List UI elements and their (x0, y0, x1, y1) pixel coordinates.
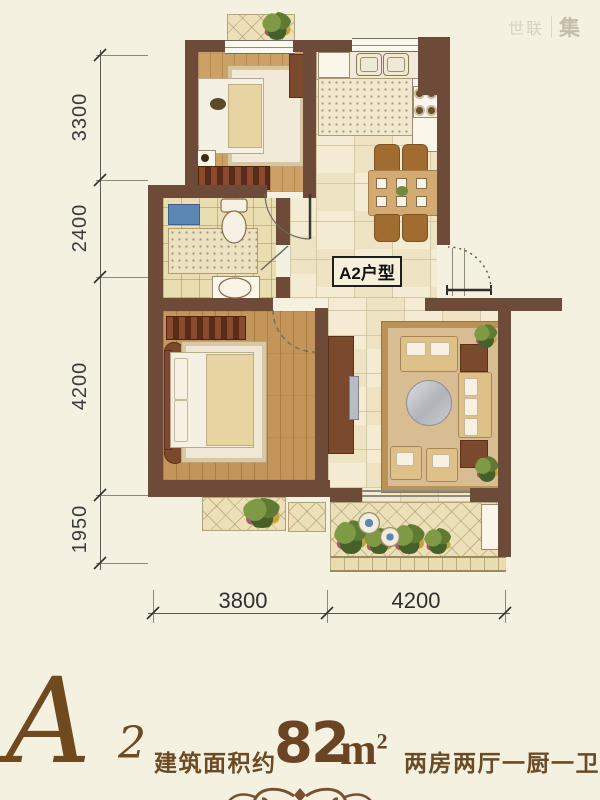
title-subscript: 2 (118, 722, 146, 766)
sofa-pillow (406, 342, 426, 356)
side-table (460, 344, 488, 372)
wall (498, 311, 511, 557)
dim-label-3800: 3800 (198, 588, 288, 614)
planter-plant (242, 498, 282, 528)
sofa-pillow (464, 418, 478, 436)
witness-line (327, 590, 328, 623)
wall (303, 52, 316, 192)
master-blanket (206, 354, 254, 446)
entry-threshold-line (464, 248, 465, 296)
kitchen-sink-left (356, 53, 382, 76)
dining-plate (396, 196, 407, 207)
wall (148, 480, 330, 497)
kitchen-fridge (318, 52, 350, 78)
balcony-stool (380, 527, 400, 547)
ornament-scroll (255, 789, 294, 800)
balcony-plant (424, 528, 452, 554)
master-pillow (174, 358, 188, 400)
wall (437, 95, 450, 245)
bottom-ornament (229, 788, 371, 800)
dining-chair (374, 144, 400, 172)
dimension-line-left (100, 50, 101, 570)
living-plant (474, 324, 498, 348)
witness-line (96, 180, 148, 181)
dim-label-2400: 2400 (69, 193, 91, 263)
witness-line (505, 590, 506, 623)
dim-label-1950: 1950 (69, 494, 91, 564)
passage-floor (328, 298, 425, 311)
living-plant (475, 456, 499, 482)
dining-plate (376, 196, 387, 207)
balcony-slider-track (362, 490, 470, 492)
dining-chair (402, 144, 428, 172)
planter-box (288, 502, 326, 532)
title-unit-sup: 2 (377, 728, 388, 753)
wall (470, 488, 510, 502)
balcony-stool (358, 512, 380, 534)
wall (185, 40, 198, 192)
title-rooms: 两房两厅一厨一卫 (404, 744, 600, 778)
armchair-pillow (396, 452, 414, 466)
sofa-pillow (464, 398, 478, 416)
wall (148, 185, 267, 198)
dim-label-4200-bottom: 4200 (371, 588, 461, 614)
planter-plant (262, 12, 292, 40)
kitchen-counter-island (318, 78, 414, 136)
sofa-pillow (430, 342, 450, 356)
witness-line (96, 495, 148, 496)
witness-line (96, 55, 148, 56)
master-wardrobe (166, 316, 246, 340)
ornament-scroll (306, 789, 345, 800)
wall (425, 298, 562, 311)
dim-label-3300: 3300 (69, 82, 91, 152)
wall (330, 488, 362, 502)
watermark-left: 世联 (508, 15, 544, 39)
witness-line (153, 590, 154, 623)
dining-plate (416, 178, 427, 189)
wall (315, 308, 328, 480)
window-bedroom2 (225, 40, 295, 54)
wall (293, 40, 352, 52)
master-pillow (174, 400, 188, 442)
ornament-scroll (229, 794, 257, 800)
witness-line (96, 277, 148, 278)
dining-chair (402, 214, 428, 242)
title-area-value: 82 (274, 716, 348, 772)
title-unit-base: m (340, 725, 377, 774)
armchair-pillow (432, 454, 450, 468)
shower-mat (168, 228, 258, 274)
title-letter: A (6, 662, 91, 780)
dining-centerpiece (396, 186, 408, 196)
dining-plate (416, 196, 427, 207)
bedroom2-bed-decor (210, 98, 226, 110)
dining-plate (376, 178, 387, 189)
sofa-pillow (464, 378, 478, 396)
dim-label-4200: 4200 (69, 351, 91, 421)
wall (303, 185, 316, 198)
wall (276, 277, 290, 298)
entry-threshold-line (452, 248, 453, 296)
witness-line (96, 563, 148, 564)
wall (148, 198, 163, 497)
kitchen-sink-right (383, 53, 409, 76)
stove-burner (416, 107, 423, 114)
wall (418, 37, 450, 95)
floor-plan-page: 世联 集 (0, 0, 600, 800)
plan-label: A2户型 (332, 256, 402, 287)
wall (148, 298, 273, 311)
coffee-table (406, 380, 452, 426)
hall-strip-floor (290, 198, 316, 298)
wall (185, 40, 227, 52)
ornament-scroll (343, 794, 371, 800)
tv-screen (349, 376, 359, 420)
title-unit: m2 (340, 728, 388, 772)
bathroom-vanity (212, 276, 260, 300)
watermark: 世联 集 (508, 12, 580, 42)
bedroom2-nightstand-lamp (201, 154, 209, 162)
watermark-right: 集 (559, 12, 580, 42)
title-prefix: 建筑面积约 (154, 744, 277, 778)
watermark-divider (551, 16, 552, 38)
washing-machine (168, 204, 200, 225)
bedroom2-blanket (228, 84, 262, 148)
dining-chair (374, 214, 400, 242)
wall (276, 198, 290, 245)
balcony-slider-track (362, 495, 470, 497)
ornament-center (294, 788, 306, 800)
balcony-railing (330, 556, 506, 572)
stove-burner (428, 107, 435, 114)
window-kitchen (352, 38, 418, 52)
door-arc-entry (448, 247, 491, 290)
balcony-cabinet (481, 504, 499, 550)
